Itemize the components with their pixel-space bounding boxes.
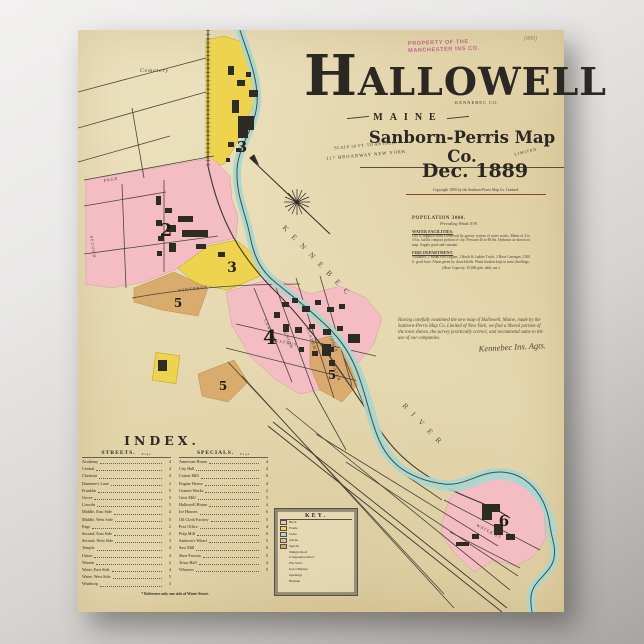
state-label: MAINE: [373, 112, 442, 123]
index-row: Sanborn's Wharf5: [179, 537, 268, 544]
key-row: Hydrant: [280, 579, 352, 585]
index-row: Union4: [82, 552, 171, 559]
handwritten-endorsement: Having carefully examined the new map of…: [398, 318, 546, 354]
key-title: KEY.: [280, 513, 352, 520]
cemetery-label: Cemetery: [140, 68, 169, 74]
index-row: Second, East Side2: [82, 530, 171, 537]
compass-rose: [250, 155, 330, 234]
index-row: Middle, East Side4: [82, 508, 171, 515]
streets-list: Academy4 Central4 Chestnut4: [82, 458, 171, 588]
index-row: Granite Works2: [179, 487, 268, 494]
key-rows: Brick Frame Stone Adobe: [280, 520, 352, 585]
poster-background: Cemetery KENNEBEC RIVER PAGE SECOND WINT…: [0, 0, 644, 644]
index-row: Ice Houses6: [179, 508, 268, 515]
index-row: City Hall4: [179, 465, 268, 472]
fire-department-text: Volunteer. 1 Steam Fire Engine, 1 Hook &…: [412, 255, 530, 264]
index-row: Water, West Side5: [82, 573, 171, 580]
index-row: Grist Mill5: [179, 494, 268, 501]
streets-header: STREETS.: [102, 450, 136, 456]
index-row: Town Hall4: [179, 559, 268, 566]
population-notes: POPULATION 3000. Prevailing Winds N.W. W…: [412, 216, 530, 270]
district-5-lower-numeral: 5: [219, 379, 227, 393]
index-row: Winthrop3: [82, 580, 171, 587]
map-date: Dec. 1889: [410, 160, 540, 182]
endorsement-text: Having carefully examined the new map of…: [398, 318, 546, 342]
winds-line: Prevailing Winds N.W.: [440, 221, 530, 226]
river-word-label: RIVER: [401, 401, 449, 450]
index-specials-column: SPECIALS.Page American House4 City Hall4: [179, 450, 268, 588]
page-label: Page: [142, 452, 152, 456]
index-row: Dummer's Lane2: [82, 480, 171, 487]
index-row: Second, West Side3: [82, 537, 171, 544]
handwritten-number: (990): [524, 36, 537, 42]
index-row: Warren2: [82, 559, 171, 566]
water-facilities-text: City is supplied from a reservoir by gra…: [412, 234, 530, 247]
state-banner: MAINE: [346, 112, 470, 123]
index-row: Central4: [82, 465, 171, 472]
index-row: Pulp Mill6: [179, 530, 268, 537]
key-color-chip: [280, 538, 287, 543]
district-5-upper-numeral: 5: [174, 296, 182, 310]
map-title: HALLOWELL: [304, 54, 572, 104]
street-index: INDEX. STREETS.Page Academy4 Central4: [82, 433, 268, 596]
key-color-chip: [280, 526, 287, 531]
key-color-chip: [280, 544, 287, 549]
index-streets-column: STREETS.Page Academy4 Central4: [82, 450, 171, 588]
index-row: Shoe Factory5: [179, 552, 268, 559]
index-row: Temple4: [82, 544, 171, 551]
key-color-chip: [280, 532, 287, 537]
index-row: Engine House4: [179, 480, 268, 487]
index-row: Hallowell House4: [179, 501, 268, 508]
district-6-numeral: 6: [499, 512, 509, 530]
copyright-line: Copyright 1890 by the Sanborn-Perris Map…: [406, 188, 546, 195]
index-row: Lincoln5: [82, 501, 171, 508]
map-key: KEY. Brick Frame Stone: [274, 508, 358, 596]
index-row: Chestnut4: [82, 472, 171, 479]
index-row: Post Office4: [179, 523, 268, 530]
index-row: Middle, West Side5: [82, 516, 171, 523]
key-color-chip: [280, 520, 287, 525]
district-3-top-numeral: 3: [237, 138, 247, 156]
index-row: Academy4: [82, 458, 171, 465]
index-row: Wharves5: [179, 566, 268, 573]
index-title: INDEX.: [98, 433, 226, 448]
district-3-mid-numeral: 3: [227, 260, 237, 276]
index-row: Saw Mill6: [179, 544, 268, 551]
index-row: Cotton Mill6: [179, 472, 268, 479]
district-5-river-numeral: 5: [328, 368, 336, 382]
page-label-2: Page: [240, 452, 250, 456]
index-row: Water, East Side4: [82, 566, 171, 573]
district-2-numeral: 2: [160, 220, 173, 241]
index-row: Franklin5: [82, 487, 171, 494]
index-footnote: * Reference only one side of Water Stree…: [82, 592, 268, 596]
map-sheet: Cemetery KENNEBEC RIVER PAGE SECOND WINT…: [78, 30, 564, 612]
district-4-numeral: 4: [263, 325, 277, 349]
county-label: KENNEBEC CO.: [455, 100, 500, 105]
hose-capacity-line: (Hose Capacity: 10,000 gals. daily use.): [412, 266, 530, 270]
specials-header: SPECIALS.: [197, 450, 234, 456]
index-row: Page2: [82, 523, 171, 530]
specials-list: American House4 City Hall4 Cotton Mill6: [179, 458, 268, 573]
index-row: Oil Cloth Factory5: [179, 516, 268, 523]
index-row: American House4: [179, 458, 268, 465]
index-row: Grove3: [82, 494, 171, 501]
